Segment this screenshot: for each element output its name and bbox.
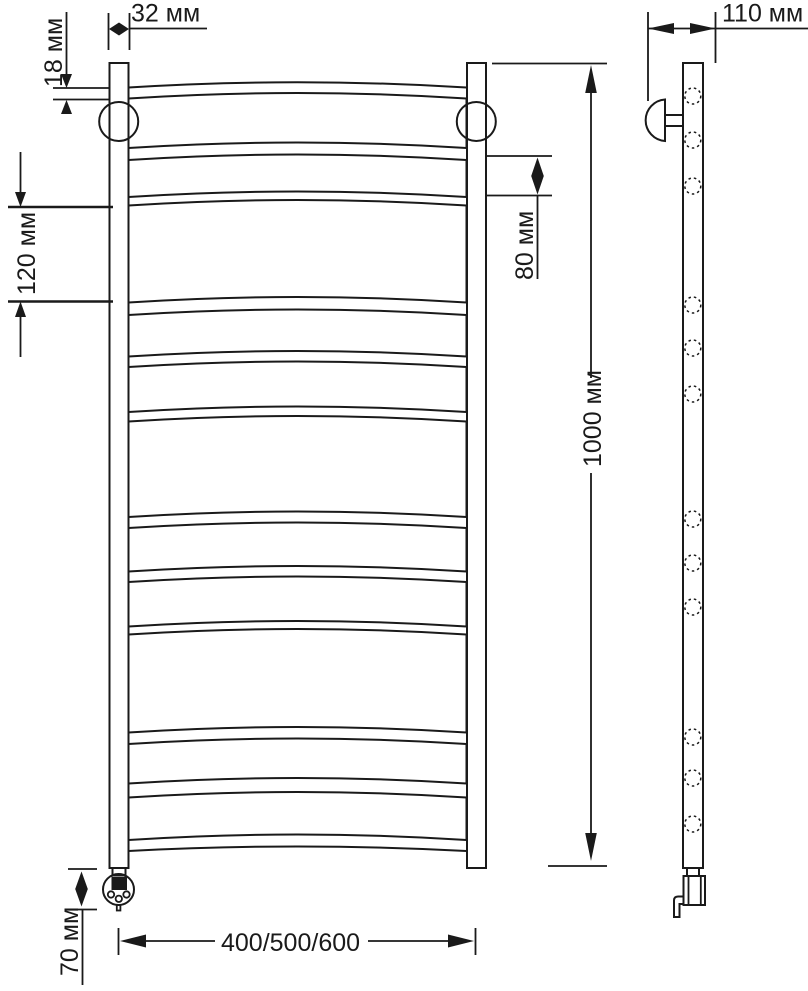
weld-point-circle: [685, 340, 701, 356]
dimension-label-110mm: 110 мм: [722, 0, 803, 28]
dimension-label-120mm: 120 мм: [13, 212, 41, 295]
rung: [129, 629, 467, 733]
weld-point-circle: [685, 178, 701, 194]
weld-point-circle: [685, 599, 701, 615]
rung: [129, 310, 467, 357]
arrowhead-down-icon: [15, 192, 26, 207]
weld-point-circle: [685, 386, 701, 402]
element-housing-inner-walls: [689, 876, 701, 905]
element-pin: [116, 896, 122, 902]
weld-point-circle: [685, 816, 701, 832]
dimension-width-400-500-600: 400/500/600: [119, 928, 476, 957]
double-arrow-diamond-icon: [531, 158, 544, 195]
rung: [129, 523, 467, 572]
weld-point-circle: [685, 132, 701, 148]
rung: [129, 739, 467, 784]
arrowhead-up-icon: [15, 302, 26, 318]
rung: [129, 416, 467, 517]
element-pin: [108, 891, 114, 897]
arrowhead-down-icon: [585, 833, 597, 861]
dimension-70mm: 70 мм: [56, 869, 97, 985]
rung: [129, 362, 467, 413]
weld-point-circle: [685, 88, 701, 104]
dimension-label-widths: 400/500/600: [221, 929, 360, 957]
side-tube: [683, 63, 703, 868]
top-collector-tube: [129, 82, 467, 87]
dimension-80mm: 80 мм: [487, 156, 552, 280]
weld-point-circle: [685, 770, 701, 786]
dimension-18mm: 18 мм: [40, 12, 110, 114]
element-tip: [117, 905, 121, 911]
towel-rail-dimension-drawing: 32 мм 18 мм 120 мм 80 мм 1000 мм: [0, 0, 808, 991]
left-rail: [110, 63, 129, 868]
arrowhead-left-icon: [648, 23, 674, 34]
dimension-label-1000mm: 1000 мм: [579, 370, 607, 467]
front-view: [99, 63, 496, 911]
rung: [129, 200, 467, 303]
weld-point-circle: [685, 555, 701, 571]
arrowhead-right-icon: [119, 23, 129, 36]
arrowhead-left-icon: [120, 935, 146, 948]
drawing-svg: 32 мм 18 мм 120 мм 80 мм 1000 мм: [0, 0, 808, 991]
dimension-32mm: 32 мм: [109, 0, 208, 50]
side-view: [646, 63, 705, 917]
left-wall-bracket-circle: [99, 102, 138, 141]
element-neck-side: [687, 868, 699, 876]
arrowhead-left-icon: [109, 23, 119, 36]
double-arrow-diamond-icon: [75, 872, 88, 907]
dimension-label-70mm: 70 мм: [56, 907, 84, 976]
dimension-label-80mm: 80 мм: [511, 211, 539, 280]
weld-point-circle: [685, 297, 701, 313]
power-cable-elbow: [674, 897, 684, 918]
rung: [129, 577, 467, 627]
element-terminal-block: [112, 877, 128, 891]
right-wall-bracket-circle: [457, 102, 496, 141]
arrowhead-right-icon: [690, 23, 716, 34]
dimension-120mm: 120 мм: [8, 152, 113, 357]
arrowhead-right-icon: [448, 935, 474, 948]
dimension-110mm: 110 мм: [648, 0, 808, 101]
element-pin: [123, 891, 129, 897]
wall-bracket-dome: [646, 100, 665, 142]
rung: [129, 155, 467, 198]
extension-lines: [648, 12, 716, 101]
arrowhead-up-icon: [61, 100, 72, 114]
rung: [129, 93, 467, 148]
weld-point-circle: [685, 729, 701, 745]
right-rail: [467, 63, 486, 868]
dimension-1000mm: 1000 мм: [492, 64, 607, 867]
heating-element-front: [103, 868, 134, 911]
dimension-label-18mm: 18 мм: [40, 18, 68, 87]
arrowhead-up-icon: [585, 65, 597, 93]
heating-element-side: [674, 868, 705, 917]
bottom-collector-tube: [129, 847, 467, 852]
dimension-label-32mm: 32 мм: [131, 0, 200, 28]
element-housing: [684, 876, 706, 905]
rung: [129, 792, 467, 840]
wall-bracket-stem: [664, 115, 683, 126]
extension-lines: [53, 88, 110, 100]
weld-point-circle: [685, 511, 701, 527]
